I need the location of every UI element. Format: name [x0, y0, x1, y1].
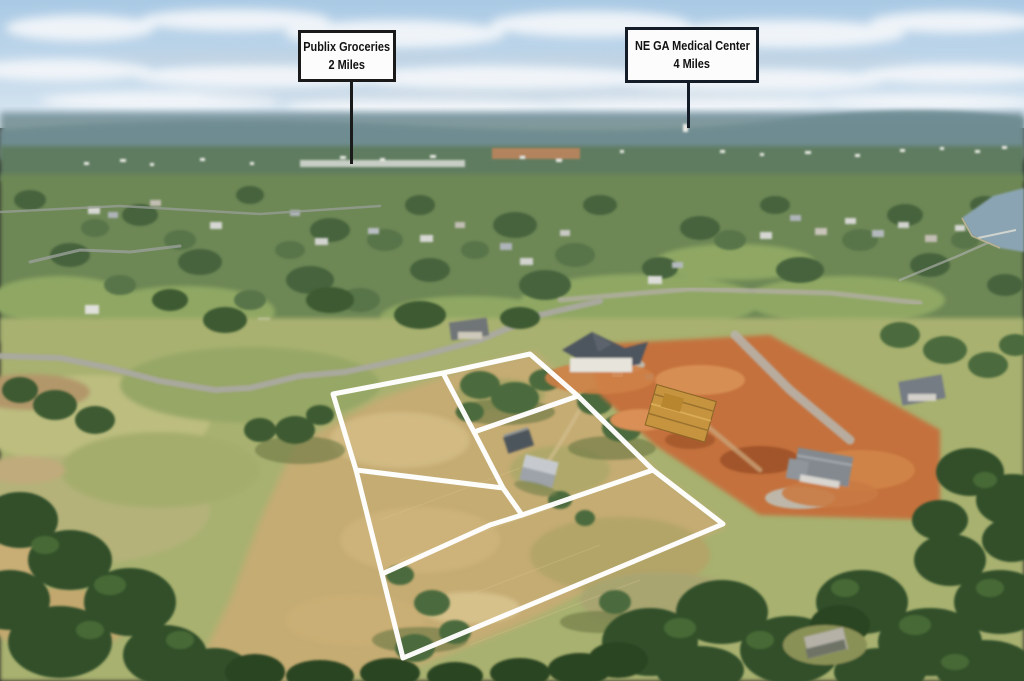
callout-medical-distance: 4 Miles [674, 55, 710, 73]
callout-medical: NE GA Medical Center 4 Miles [625, 27, 759, 83]
callout-leader-line-publix [350, 80, 353, 164]
aerial-listing-photo: Publix Groceries 2 Miles NE GA Medical C… [0, 0, 1024, 681]
clearing-house [783, 625, 867, 665]
callout-leader-line-medical [687, 81, 690, 128]
horizon-haze [0, 110, 1024, 182]
callout-publix-title: Publix Groceries [304, 38, 391, 56]
callout-medical-title: NE GA Medical Center [635, 37, 750, 55]
callout-publix-distance: 2 Miles [329, 56, 365, 74]
aerial-scene [0, 0, 1024, 681]
sky [0, 0, 1024, 128]
callout-publix: Publix Groceries 2 Miles [298, 30, 396, 82]
